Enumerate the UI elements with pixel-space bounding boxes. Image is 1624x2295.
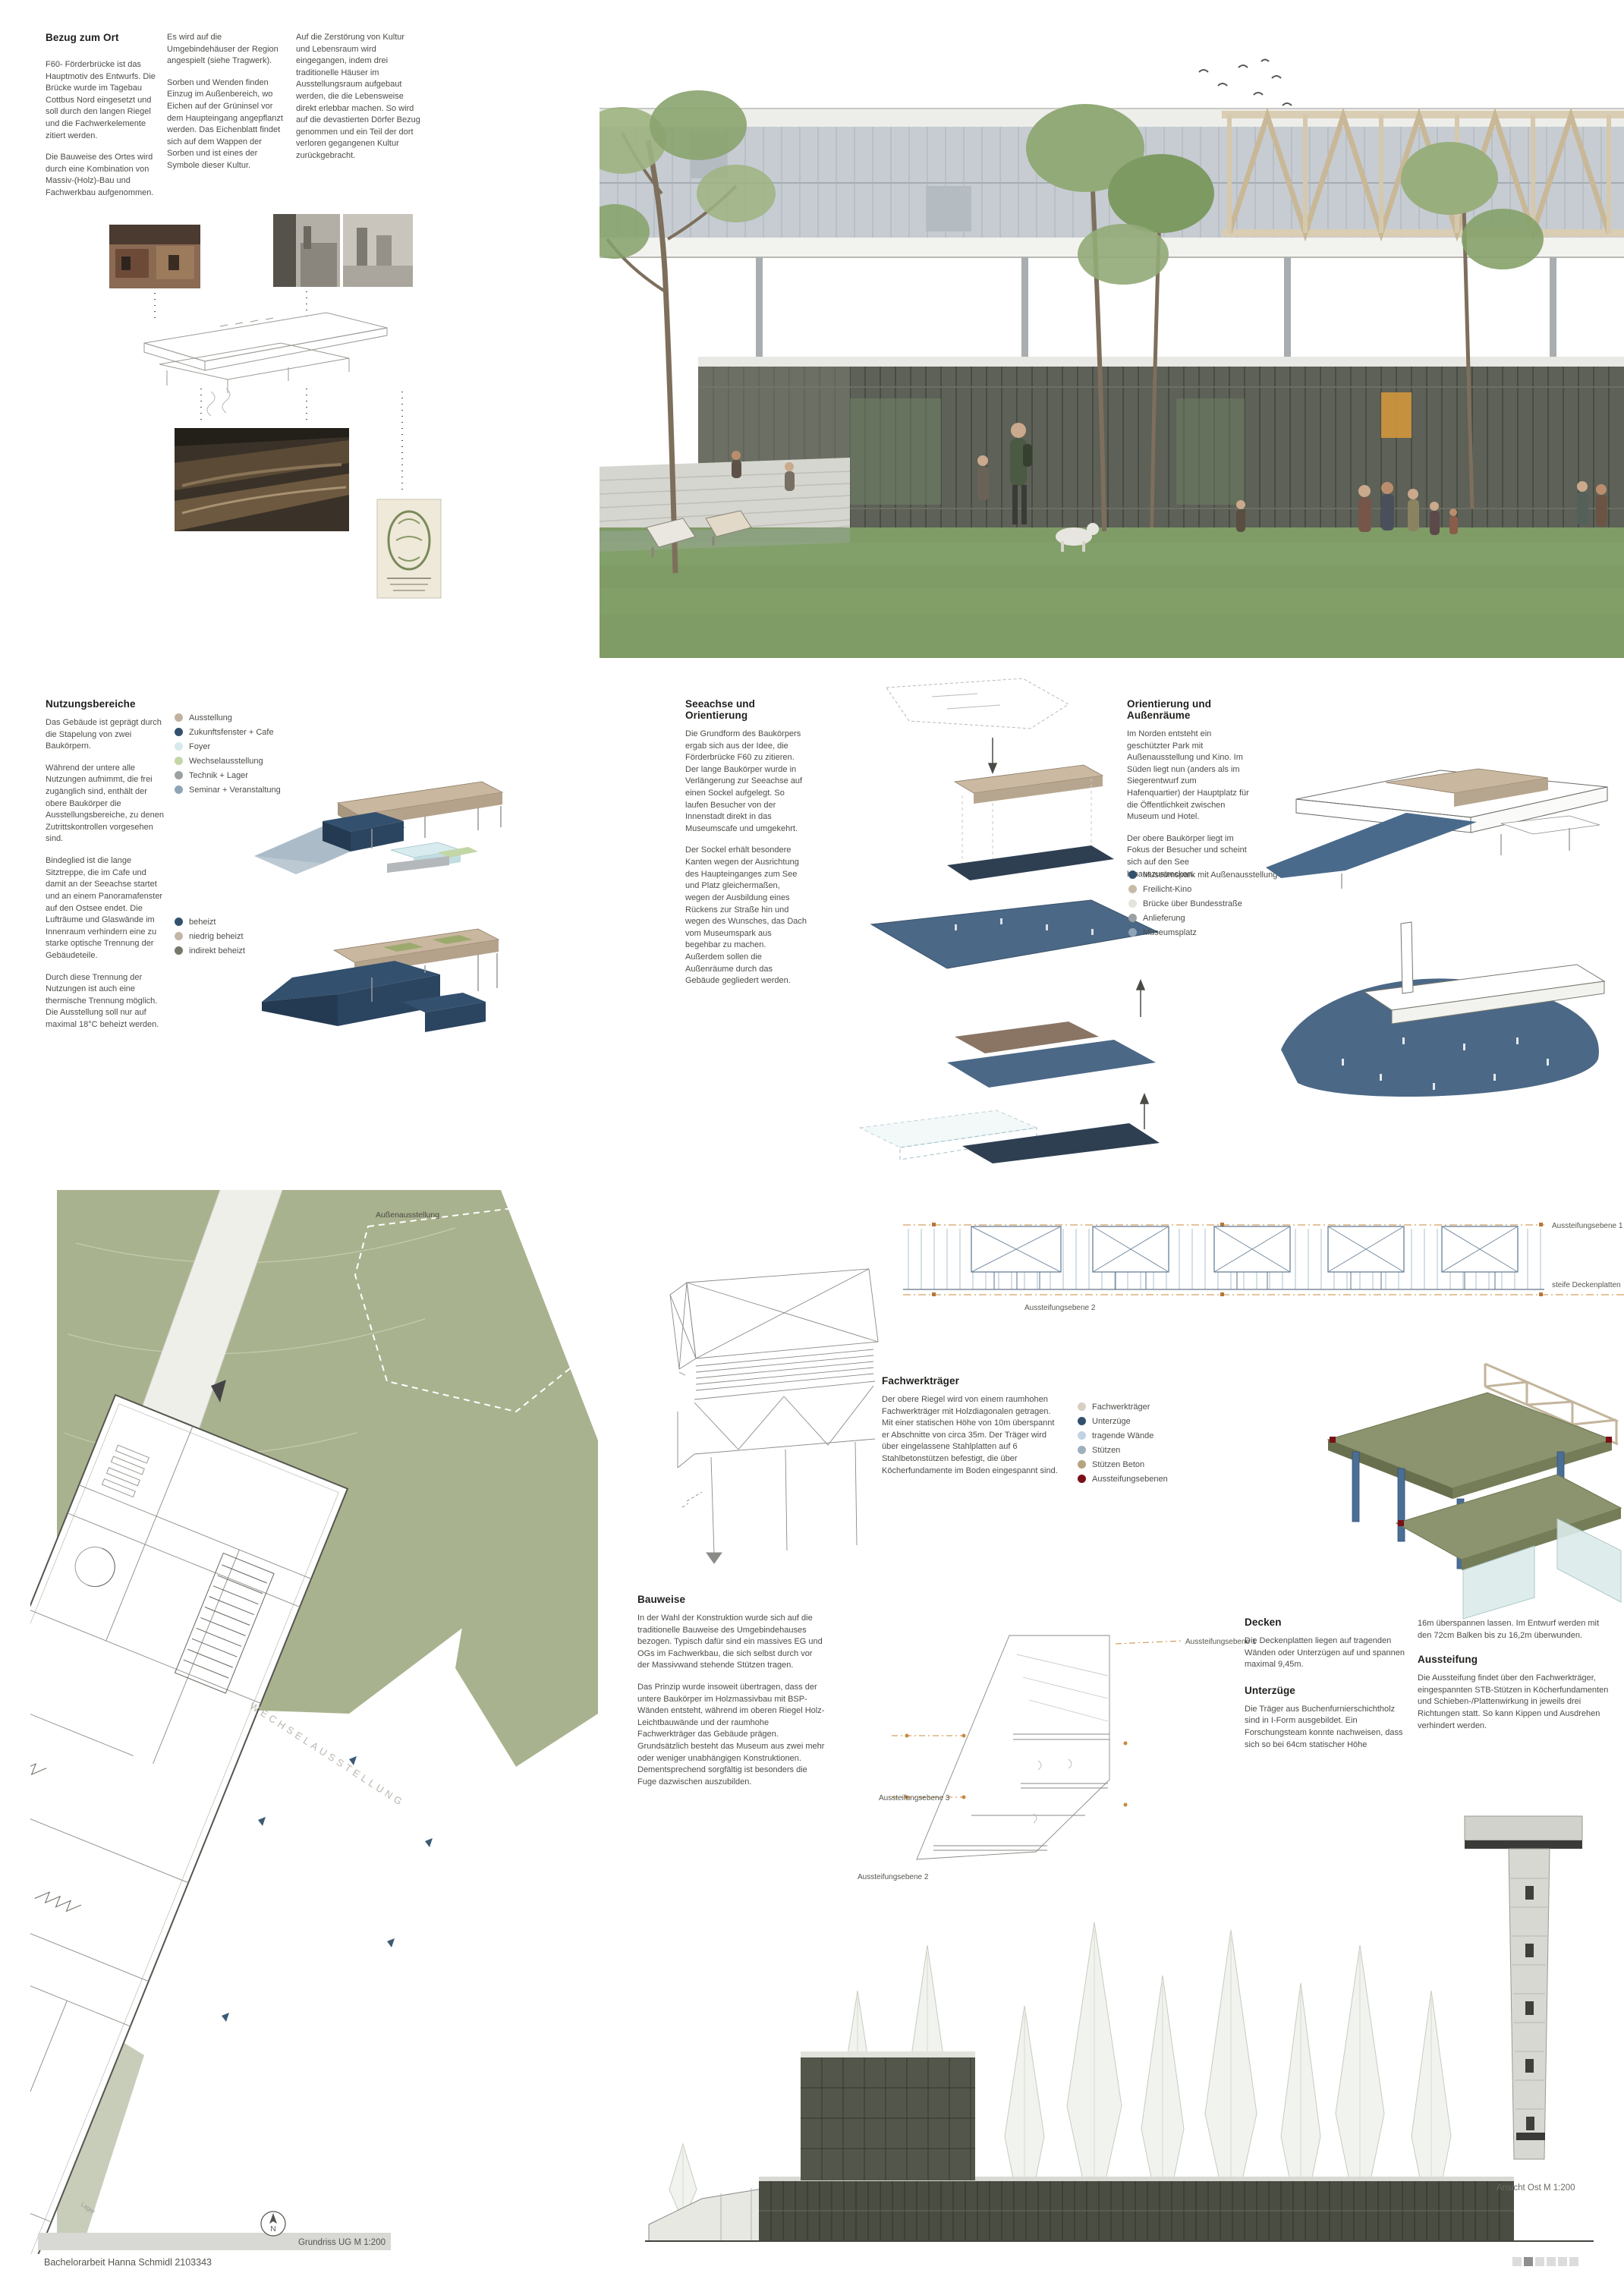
paragraph: 16m überspannen lassen. Im Entwurf werde… xyxy=(1418,1618,1610,1642)
legend-label: indirekt beheizt xyxy=(189,946,245,955)
nutzung-axonometric-diagrams xyxy=(250,774,508,1055)
section-title: Bauweise xyxy=(637,1594,826,1605)
legend-label: Anlieferung xyxy=(1143,914,1185,923)
paragraph: Es wird auf die Umgebindehäuser der Regi… xyxy=(167,32,290,68)
coat-of-arms xyxy=(377,499,441,598)
paragraph: In der Wahl der Konstruktion wurde sich … xyxy=(637,1613,826,1672)
paragraph: Der Sockel erhält besondere Kanten wegen… xyxy=(685,845,807,987)
aussteifungsebene3-label: Aussteifungsebene 3 xyxy=(879,1794,950,1802)
legend-item: Fachwerkträger xyxy=(1078,1399,1168,1414)
footer-author: Bachelorarbeit Hanna Schmidl 2103343 xyxy=(44,2257,212,2268)
site-plan: Außenausstellung xyxy=(30,1182,615,2254)
aussteifungsebene1-label: Aussteifungsebene 1 xyxy=(1552,1222,1623,1230)
section-bezug: Bezug zum Ort F60- Förderbrücke ist das … xyxy=(46,32,440,51)
legend-label: Brücke über Bundesstraße xyxy=(1143,899,1242,908)
aussteifungsebene2-label: Aussteifungsebene 2 xyxy=(1024,1304,1096,1312)
paragraph: Bindeglied ist die lange Sitztreppe, die… xyxy=(46,855,167,962)
legend-dot xyxy=(1128,885,1137,893)
section-title: Decken xyxy=(1245,1617,1410,1628)
legend-item: Stützen Beton xyxy=(1078,1457,1168,1472)
legend-dot xyxy=(1078,1446,1086,1454)
legend-item: Aussteifungsebenen xyxy=(1078,1472,1168,1486)
legend-dot xyxy=(175,771,183,779)
legend-dot xyxy=(175,728,183,736)
page-square xyxy=(1558,2257,1567,2266)
section-title: Nutzungsbereiche xyxy=(46,698,167,710)
legend-label: Foyer xyxy=(189,742,210,751)
legend-dot xyxy=(1128,899,1137,908)
section-title: Aussteifung xyxy=(1418,1654,1610,1665)
upper-block xyxy=(801,2051,975,2180)
section-fachwerk: Fachwerkträger Der obere Riegel wird von… xyxy=(882,1375,1061,1487)
section-title: Seeachse und Orientierung xyxy=(685,698,807,721)
wechselausstellung-label: WECHSELAUSSTELLUNG xyxy=(247,1700,407,1809)
lawn xyxy=(600,527,1624,658)
section-title: Fachwerkträger xyxy=(882,1375,1061,1387)
legend-dot xyxy=(1128,928,1137,937)
page-square-active xyxy=(1524,2257,1533,2266)
text-column: F60- Förderbrücke ist das Hauptmotiv des… xyxy=(46,59,165,209)
paragraph: Auf die Zerstörung von Kultur und Lebens… xyxy=(296,32,420,162)
page-square xyxy=(1547,2257,1556,2266)
photo-historic-1 xyxy=(273,214,340,287)
legend-dot xyxy=(1078,1460,1086,1469)
paragraph: Die Aussteifung findet über den Fachwerk… xyxy=(1418,1673,1610,1732)
legend-dot xyxy=(175,742,183,751)
legend-dot xyxy=(175,785,183,794)
page-square xyxy=(1569,2257,1578,2266)
tan-bar xyxy=(955,765,1103,804)
legend-dot xyxy=(1128,870,1137,879)
legend-label: tragende Wände xyxy=(1092,1431,1153,1440)
x-brace-panels xyxy=(971,1226,1518,1289)
paragraph: Die Grundform des Baukörpers ergab sich … xyxy=(685,729,807,835)
legend-item: tragende Wände xyxy=(1078,1428,1168,1443)
page-square xyxy=(1535,2257,1544,2266)
svg-text:N: N xyxy=(270,2225,275,2234)
paragraph: Sorben und Wenden finden Einzug im Außen… xyxy=(167,77,290,172)
legend-label: Aussteifungsebenen xyxy=(1092,1475,1168,1484)
reference-images-diagram xyxy=(30,212,455,615)
aussteifung-lines xyxy=(892,1641,1182,1797)
legend-item: Ausstellung xyxy=(175,710,281,725)
section-orientierung: Orientierung und Außenräume Im Norden en… xyxy=(1127,698,1250,890)
paragraph: Die Bauweise des Ortes wird durch eine K… xyxy=(46,152,165,199)
fachwerk-legend: Fachwerkträger Unterzüge tragende Wände … xyxy=(1078,1399,1168,1486)
section-seeachse: Seeachse und Orientierung Die Grundform … xyxy=(685,698,807,997)
section-title: Orientierung und Außenräume xyxy=(1127,698,1250,721)
section-nutzung: Nutzungsbereiche Das Gebäude ist geprägt… xyxy=(46,698,167,1041)
legend-label: Technik + Lager xyxy=(189,771,248,780)
deckenplatten-label: steife Deckenplatten xyxy=(1552,1281,1621,1289)
building-footprint xyxy=(30,1395,348,2254)
plan-caption: Grundriss UG M 1:200 xyxy=(298,2238,386,2247)
legend-label: niedrig beheizt xyxy=(189,932,244,941)
arrow-up-icon xyxy=(1137,981,1144,1017)
legend-dot xyxy=(175,713,183,722)
paragraph: Das Gebäude ist geprägt durch die Stapel… xyxy=(46,717,167,753)
legend-label: Freilicht-Kino xyxy=(1143,885,1191,894)
section-title: Unterzüge xyxy=(1245,1685,1410,1696)
photo-aerial-mine xyxy=(175,428,349,531)
legend-label: Zukunftsfenster + Cafe xyxy=(189,728,274,737)
paragraph: Während der untere alle Nutzungen aufnim… xyxy=(46,763,167,845)
section-decken: Decken Die Deckenplatten liegen auf trag… xyxy=(1245,1617,1410,1761)
page-square xyxy=(1512,2257,1522,2266)
text-column: Es wird auf die Umgebindehäuser der Regi… xyxy=(167,32,290,182)
legend-item: indirekt beheizt xyxy=(175,943,245,958)
axon-building-ramp xyxy=(1266,769,1607,889)
birds-icon xyxy=(1199,60,1292,112)
axon-uses xyxy=(254,782,502,874)
east-elevation: Ansicht Ost M 1:200 xyxy=(630,1810,1624,2254)
glazed-hall xyxy=(759,2177,1514,2241)
observation-tower xyxy=(1465,1816,1582,2159)
legend-dot xyxy=(1078,1475,1086,1483)
paragraph: Das Prinzip wurde insoweit übertragen, d… xyxy=(637,1682,826,1788)
legend-dot xyxy=(175,946,183,955)
paragraph: Der obere Riegel wird von einem raumhohe… xyxy=(882,1394,1061,1477)
legend-item: niedrig beheizt xyxy=(175,929,245,943)
axon-lake-plaza xyxy=(1281,922,1604,1097)
elevation-caption: Ansicht Ost M 1:200 xyxy=(1497,2183,1575,2193)
legend-item: Foyer xyxy=(175,739,281,754)
exterior-rendering xyxy=(600,42,1624,658)
paragraph: Durch diese Trennung der Nutzungen ist a… xyxy=(46,972,167,1031)
legend-item: beheizt xyxy=(175,915,245,929)
aussenausstellung-label: Außenausstellung xyxy=(376,1210,439,1220)
page-indicator xyxy=(1510,2256,1578,2270)
axonometric-sketch xyxy=(144,313,387,416)
legend-item: Wechselausstellung xyxy=(175,754,281,768)
legend-dot xyxy=(1078,1402,1086,1411)
legend-dot xyxy=(175,918,183,926)
arrow-down-icon xyxy=(989,738,996,773)
paragraph: Im Norden entsteht ein geschützter Park … xyxy=(1127,729,1250,823)
north-arrow-icon: N xyxy=(261,2212,285,2236)
legend-dot xyxy=(175,932,183,940)
paragraph: F60- Förderbrücke ist das Hauptmotiv des… xyxy=(46,59,165,142)
photo-brick-house xyxy=(109,225,200,288)
axon-heating xyxy=(262,929,499,1032)
paragraph: Die Deckenplatten liegen auf tragenden W… xyxy=(1245,1635,1410,1671)
legend-item: Unterzüge xyxy=(1078,1414,1168,1428)
legend-label: Stützen Beton xyxy=(1092,1460,1144,1469)
nutzung-legend-heating: beheizt niedrig beheizt indirekt beheizt xyxy=(175,915,245,958)
legend-label: Fachwerkträger xyxy=(1092,1402,1150,1412)
text-column: Auf die Zerstörung von Kultur und Lebens… xyxy=(296,32,420,172)
orientierung-diagrams xyxy=(1251,740,1624,1135)
seeachse-exploded-diagram xyxy=(841,674,1160,1163)
structure-axonometric xyxy=(1307,1347,1624,1620)
navy-slab xyxy=(947,845,1114,880)
site-outline-sketch xyxy=(886,678,1069,729)
legend-dot xyxy=(1078,1417,1086,1425)
legend-label: Museumsplatz xyxy=(1143,928,1197,937)
truss-corner-sketch xyxy=(641,1251,899,1573)
photo-historic-2 xyxy=(343,214,413,287)
legend-dot xyxy=(175,757,183,765)
legend-item: Stützen xyxy=(1078,1443,1168,1457)
section-bauweise: Bauweise In der Wahl der Konstruktion wu… xyxy=(637,1594,826,1799)
legend-label: Stützen xyxy=(1092,1446,1120,1455)
legend-label: Unterzüge xyxy=(1092,1417,1131,1426)
artwork-through-glass xyxy=(1381,392,1412,438)
presentation-board: Bezug zum Ort F60- Förderbrücke ist das … xyxy=(0,0,1624,2295)
big-roof-slab xyxy=(871,900,1158,968)
section-aussteifung: 16m überspannen lassen. Im Entwurf werde… xyxy=(1418,1618,1610,1742)
legend-item: Zukunftsfenster + Cafe xyxy=(175,725,281,739)
truss-elevation-diagram: Aussteifungsebene 1 steife Deckenplatten… xyxy=(899,1216,1624,1316)
legend-label: Ausstellung xyxy=(189,713,232,722)
legend-dot xyxy=(1128,914,1137,922)
legend-label: beheizt xyxy=(189,918,216,927)
paragraph: Die Träger aus Buchenfurnierschichtholz … xyxy=(1245,1704,1410,1751)
legend-label: Wechselausstellung xyxy=(189,757,263,766)
arrow-up-icon xyxy=(1141,1094,1148,1129)
legend-dot xyxy=(1078,1431,1086,1440)
